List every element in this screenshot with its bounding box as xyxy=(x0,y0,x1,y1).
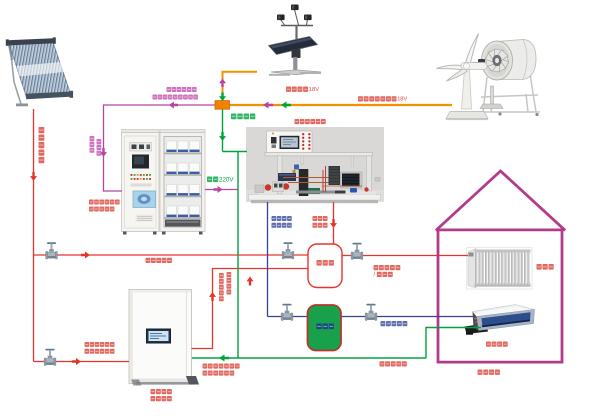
svg-text:18V: 18V xyxy=(397,97,407,103)
svg-text:220V: 220V xyxy=(219,176,234,183)
svg-text:18V: 18V xyxy=(309,87,319,93)
